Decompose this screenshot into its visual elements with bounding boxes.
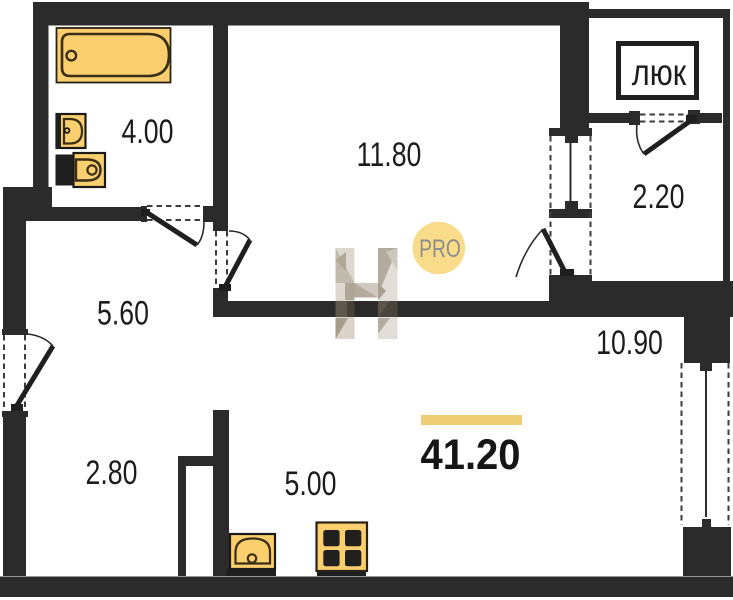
svg-text:10.90: 10.90 bbox=[596, 324, 663, 362]
svg-text:5.60: 5.60 bbox=[97, 294, 149, 332]
svg-text:4.00: 4.00 bbox=[122, 113, 174, 151]
svg-text:2.20: 2.20 bbox=[633, 178, 685, 216]
svg-text:2.80: 2.80 bbox=[86, 454, 138, 492]
svg-text:PRO: PRO bbox=[419, 235, 461, 263]
svg-text:41.20: 41.20 bbox=[420, 430, 520, 479]
svg-text:11.80: 11.80 bbox=[357, 136, 422, 174]
svg-text:люк: люк bbox=[632, 52, 687, 93]
svg-text:5.00: 5.00 bbox=[285, 465, 337, 503]
